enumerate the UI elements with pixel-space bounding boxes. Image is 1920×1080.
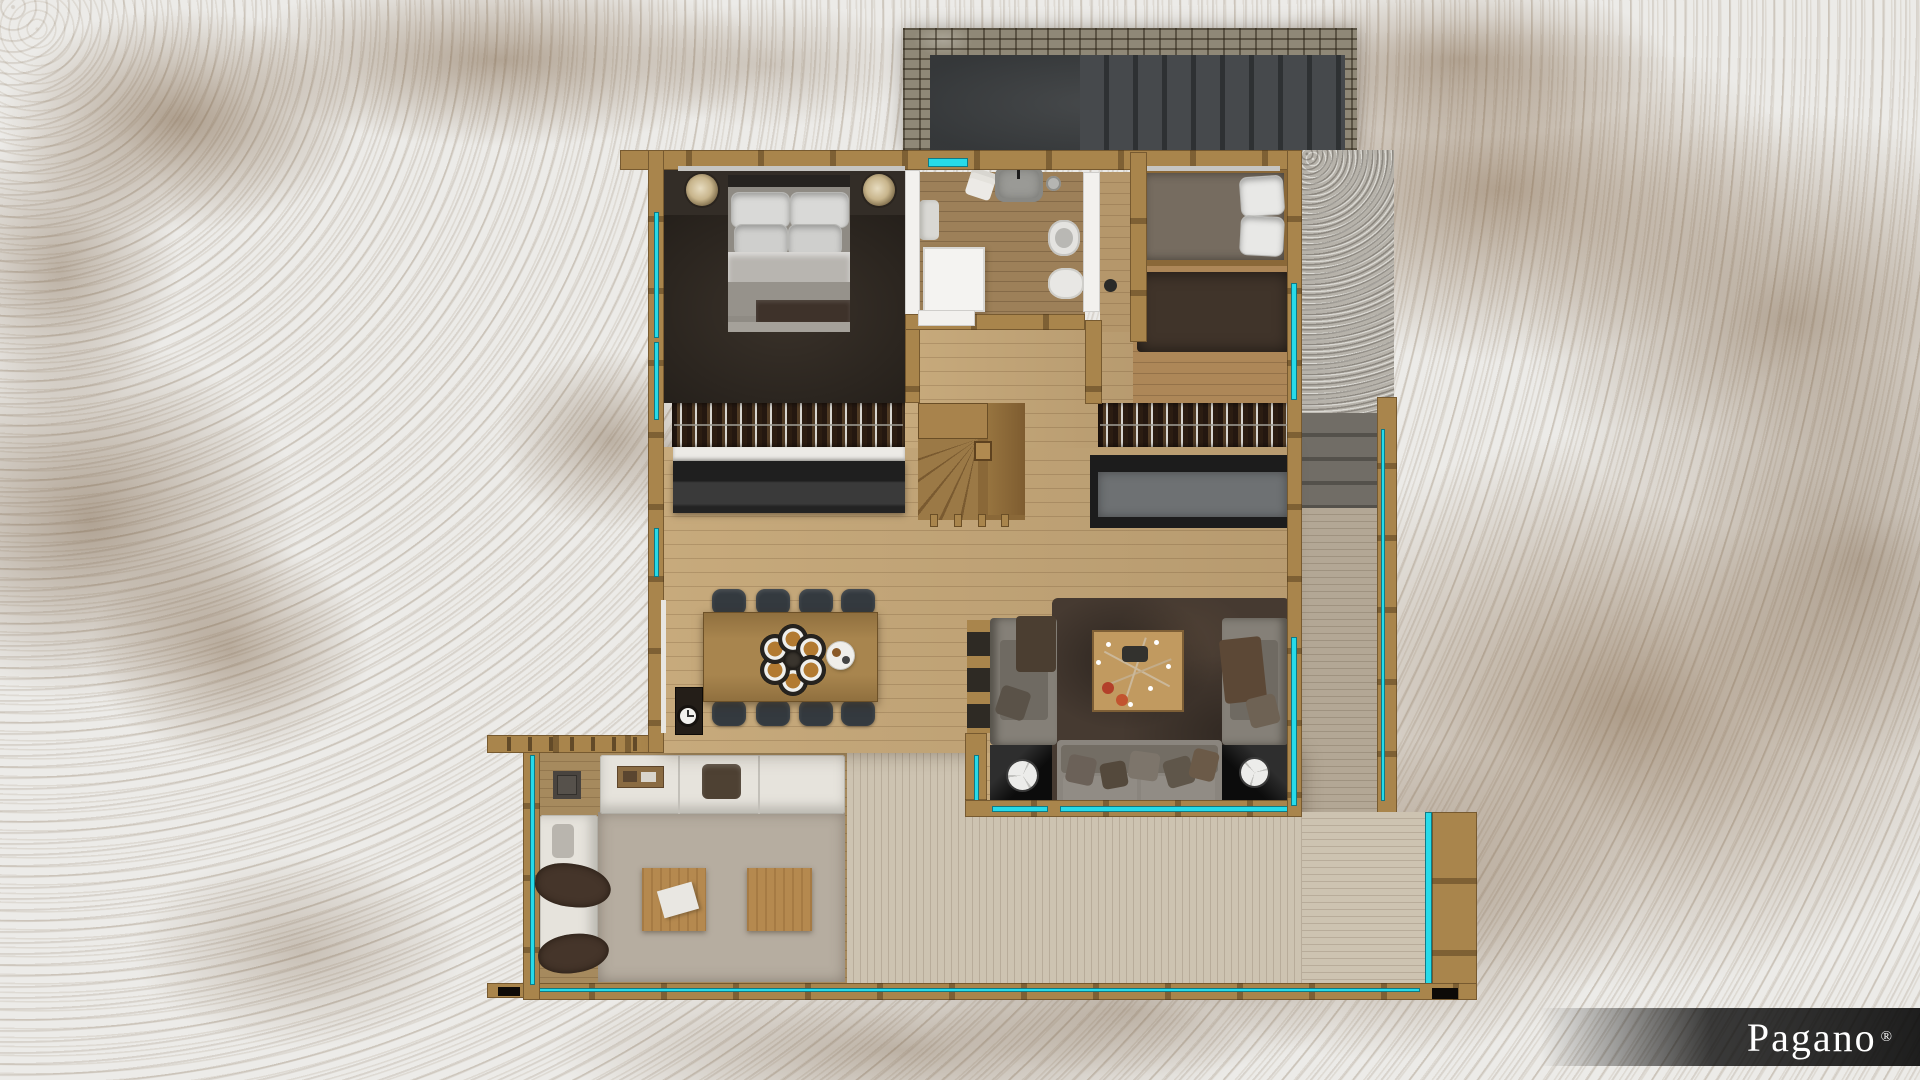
tray-item-dark — [623, 771, 637, 782]
bed-pillow — [731, 192, 790, 228]
deck-south-glass — [535, 988, 1420, 992]
bed-pillow — [790, 192, 849, 228]
south-deck-east-extension — [1302, 812, 1425, 983]
bath-accessory — [1046, 176, 1061, 191]
veranda-side-table — [553, 771, 581, 799]
stair-baluster — [978, 514, 986, 527]
bedside-lamp-left — [686, 174, 718, 206]
bed-headboard — [728, 175, 850, 187]
sofa-pillow — [1127, 750, 1161, 782]
single-bed — [1137, 167, 1290, 266]
gravel-path — [1302, 150, 1394, 418]
brand-name: Pagano — [1747, 1014, 1881, 1061]
cup — [832, 648, 841, 657]
door-knob — [1104, 279, 1117, 292]
hanging-towel — [919, 200, 939, 240]
second-bedroom-rug — [1137, 272, 1290, 352]
hall-east-post — [1085, 320, 1102, 404]
clock-hand — [688, 715, 694, 717]
interior-stair — [918, 403, 1025, 520]
hall-west-post — [905, 320, 920, 403]
white-berry — [1096, 660, 1101, 665]
kitchen-counter — [673, 461, 905, 513]
east-wall — [1287, 150, 1302, 817]
west-glass-3 — [654, 528, 659, 577]
living-sofa-east — [1222, 618, 1288, 745]
clock-cabinet — [675, 687, 703, 735]
bathroom-east-wall — [1083, 172, 1100, 312]
wardrobe-rail — [674, 424, 903, 426]
corner-table-east — [1222, 745, 1288, 807]
sofa-throw — [1219, 636, 1267, 704]
tray-item-light — [641, 772, 656, 782]
east-glass-living — [1291, 637, 1297, 806]
red-bauble — [1102, 682, 1114, 694]
toilet-bowl — [1055, 228, 1073, 248]
toilet — [1048, 220, 1080, 256]
living-coffee-table — [1092, 630, 1184, 712]
red-bauble — [1116, 694, 1128, 706]
sofa-pillow — [1064, 753, 1097, 786]
south-edge-vent-east — [1432, 988, 1458, 999]
master-double-bed — [728, 175, 850, 332]
bed-pillow — [1239, 175, 1286, 218]
west-curtain — [661, 600, 666, 733]
stair-baluster — [930, 514, 938, 527]
center-charger — [784, 651, 802, 669]
washbasin — [995, 166, 1043, 202]
veranda-sofa-top-row — [600, 755, 845, 814]
kitchen-backsplash — [673, 447, 905, 461]
master-wardrobe — [672, 403, 905, 447]
east-walkway-deck — [1300, 508, 1377, 813]
corner-table-west — [990, 745, 1052, 807]
east-railing-glass — [1381, 429, 1385, 801]
west-glass-2 — [654, 342, 659, 420]
east-glass-bedroom — [1291, 283, 1297, 400]
dining-table — [703, 612, 878, 702]
round-tray — [1008, 761, 1037, 790]
stair-baluster — [954, 514, 962, 527]
white-berry — [1166, 664, 1171, 669]
living-south-glass-east — [1060, 806, 1295, 812]
stair-upper-flight — [988, 403, 1025, 515]
living-west-glass — [974, 755, 979, 805]
south-edge-vent-west — [498, 987, 520, 996]
dining-chair — [841, 700, 875, 726]
pinecone-cluster — [1122, 646, 1148, 662]
sofa-module-gap — [758, 755, 760, 814]
sofa-wood-tray — [617, 766, 664, 788]
east-low-cabinet — [1090, 455, 1287, 528]
sofa-gray-pillow — [552, 824, 574, 858]
east-cabinet-top — [1098, 472, 1287, 517]
bed-throw — [756, 300, 850, 322]
dining-chair — [799, 700, 833, 726]
second-wardrobe — [1098, 403, 1290, 447]
floor-plan-render: Pagano® — [0, 0, 1920, 1080]
table-papers — [657, 882, 699, 919]
bathroom-skylight — [928, 158, 968, 167]
bedside-lamp-right — [863, 174, 895, 206]
shower-tray — [923, 247, 985, 312]
brand-watermark: Pagano® — [1540, 1008, 1920, 1066]
white-berry — [1106, 642, 1111, 647]
bed-foot — [728, 322, 850, 332]
round-tray — [1241, 759, 1268, 786]
white-berry — [1148, 686, 1153, 691]
slatted-bench — [967, 620, 990, 733]
bathroom-sliding-door — [918, 310, 975, 326]
dining-chair — [712, 700, 746, 726]
stair-landing — [918, 403, 988, 439]
deck-east-glass-screen — [1425, 812, 1432, 985]
bed-pillow — [1239, 215, 1285, 257]
white-berry — [1154, 640, 1159, 645]
north-glazing-east — [1140, 166, 1280, 171]
veranda-coffee-table-2 — [747, 868, 812, 931]
stair-baluster — [1001, 514, 1009, 527]
sofa-throw — [1016, 616, 1056, 672]
white-berry — [1128, 702, 1133, 707]
living-sofa-west — [990, 618, 1057, 745]
north-glazing-west — [678, 166, 905, 171]
master-bedroom-door-wall — [905, 170, 920, 320]
west-glass-1 — [654, 212, 659, 338]
wardrobe-rail — [1100, 424, 1288, 426]
stair-newel-post — [974, 441, 992, 461]
sofa-pillow — [1188, 747, 1220, 782]
living-south-glass-west — [992, 806, 1048, 812]
east-walkway-railing — [1377, 397, 1397, 813]
sofa-pillow — [1099, 760, 1129, 790]
registered-mark: ® — [1881, 1029, 1894, 1046]
stair-winder-treads — [918, 439, 978, 520]
dining-chair — [756, 700, 790, 726]
second-bedroom-west-wall — [1130, 152, 1147, 342]
entrance-exterior-steps — [1080, 55, 1345, 152]
sofa-module-gap — [678, 755, 680, 814]
veranda-coffee-table-1 — [642, 868, 706, 931]
cup — [842, 656, 850, 664]
veranda-west-wall — [523, 737, 540, 1000]
serving-tray — [827, 642, 854, 669]
side-exterior-steps — [1302, 413, 1377, 510]
west-wall — [648, 150, 664, 753]
veranda-west-glass — [530, 755, 535, 985]
corridor-floor — [1100, 172, 1133, 332]
deck-east-wood-band — [1432, 812, 1477, 1000]
wall-clock — [677, 705, 699, 727]
sofa-brown-cushion — [702, 764, 741, 799]
bidet — [1048, 268, 1084, 299]
